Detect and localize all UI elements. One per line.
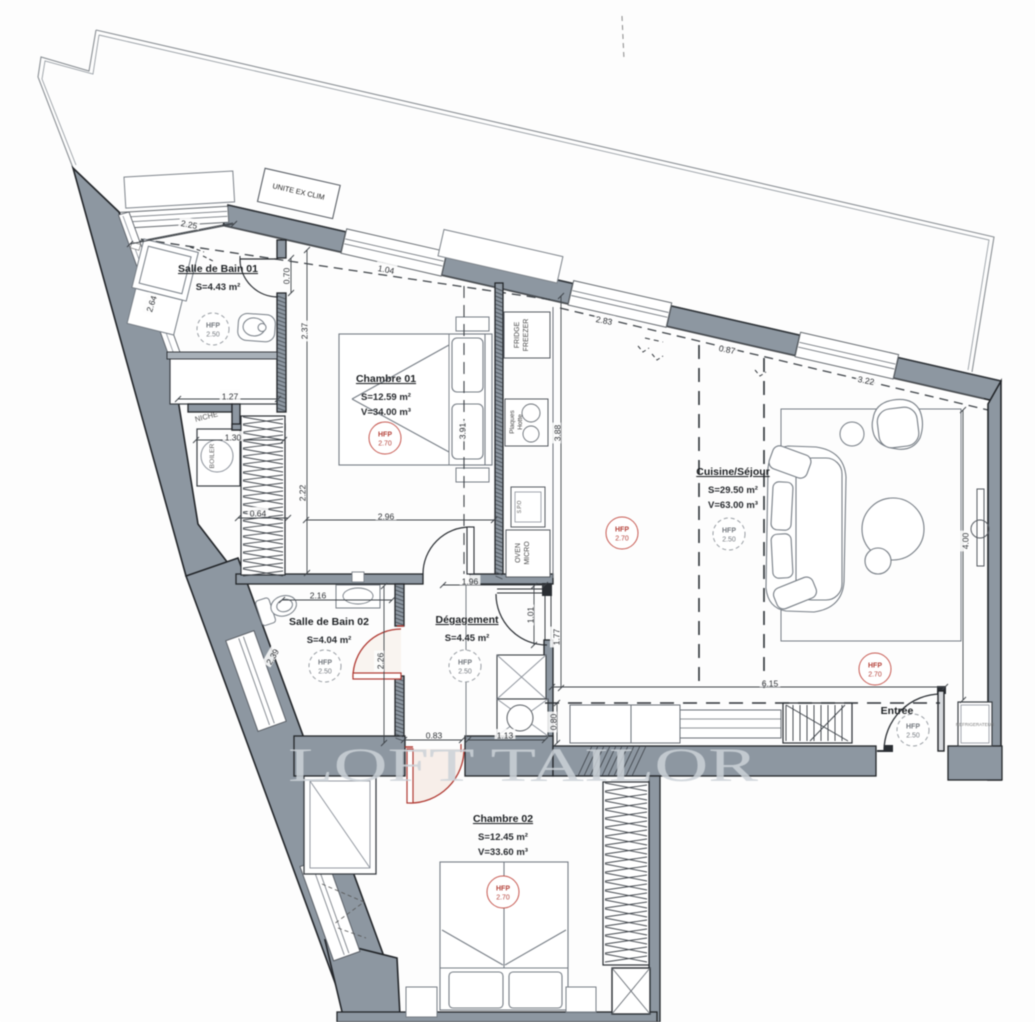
svg-text:4.00: 4.00 xyxy=(961,532,971,549)
svg-text:2.70: 2.70 xyxy=(378,441,392,448)
svg-text:HFP: HFP xyxy=(615,527,629,534)
svg-text:1.77: 1.77 xyxy=(552,628,562,645)
svg-text:HFP: HFP xyxy=(906,724,920,731)
svg-text:S=12.59 m²: S=12.59 m² xyxy=(361,392,411,403)
svg-text:0.64: 0.64 xyxy=(250,509,267,519)
svg-text:V=63.00 m³: V=63.00 m³ xyxy=(708,500,758,511)
svg-text:2.50: 2.50 xyxy=(458,669,472,676)
svg-text:HFP: HFP xyxy=(458,660,472,667)
svg-text:2.37: 2.37 xyxy=(300,322,310,339)
svg-text:FRIDGE: FRIDGE xyxy=(514,321,521,348)
svg-text:HFP: HFP xyxy=(496,886,510,893)
svg-text:Plaques: Plaques xyxy=(509,410,516,434)
svg-text:2.50: 2.50 xyxy=(906,733,920,740)
svg-text:0.70: 0.70 xyxy=(282,267,292,284)
svg-text:S=29.50 m²: S=29.50 m² xyxy=(708,485,758,496)
svg-text:3.91: 3.91 xyxy=(458,422,468,439)
svg-text:HFP: HFP xyxy=(318,660,332,667)
svg-text:2.50: 2.50 xyxy=(318,669,332,676)
svg-text:Dégagement: Dégagement xyxy=(435,614,499,626)
svg-text:1.27: 1.27 xyxy=(222,392,239,402)
svg-text:MICRO: MICRO xyxy=(524,541,531,565)
svg-text:BOILER: BOILER xyxy=(209,443,216,468)
svg-text:2.70: 2.70 xyxy=(496,895,510,902)
svg-text:FREEZER: FREEZER xyxy=(523,319,530,352)
svg-text:LOFT TAILOR: LOFT TAILOR xyxy=(288,739,758,792)
svg-text:Hotte: Hotte xyxy=(517,414,524,430)
svg-text:HFP: HFP xyxy=(378,432,392,439)
svg-text:HFP: HFP xyxy=(206,323,220,330)
svg-text:2.26: 2.26 xyxy=(376,652,386,669)
svg-text:0.80: 0.80 xyxy=(549,713,559,730)
svg-text:S=4.04 m²: S=4.04 m² xyxy=(307,635,352,646)
svg-text:2.96: 2.96 xyxy=(378,512,395,522)
svg-text:2.22: 2.22 xyxy=(298,484,308,501)
svg-text:OVEN: OVEN xyxy=(515,543,522,563)
svg-text:S=4.45 m²: S=4.45 m² xyxy=(445,633,490,644)
svg-text:1.01: 1.01 xyxy=(526,606,536,623)
svg-text:V=34.00 m³: V=34.00 m³ xyxy=(361,407,411,418)
svg-text:S.P.O: S.P.O xyxy=(517,501,523,514)
svg-text:2.16: 2.16 xyxy=(310,591,327,601)
svg-text:Salle de Bain 02: Salle de Bain 02 xyxy=(289,616,369,628)
svg-text:Chambre 02: Chambre 02 xyxy=(473,813,533,825)
svg-text:REFRIGERATEUR: REFRIGERATEUR xyxy=(956,722,995,727)
svg-text:2.70: 2.70 xyxy=(615,536,629,543)
svg-text:V=33.60 m³: V=33.60 m³ xyxy=(478,847,528,858)
svg-text:S=12.45 m²: S=12.45 m² xyxy=(478,832,528,843)
svg-text:S=4.43 m²: S=4.43 m² xyxy=(196,282,241,293)
svg-text:2.50: 2.50 xyxy=(722,537,736,544)
svg-text:Cuisine/Séjour: Cuisine/Séjour xyxy=(696,466,770,478)
svg-text:Salle de Bain 01: Salle de Bain 01 xyxy=(178,263,258,275)
svg-text:2.70: 2.70 xyxy=(868,672,882,679)
svg-text:HFP: HFP xyxy=(722,528,736,535)
svg-text:2.50: 2.50 xyxy=(206,332,220,339)
svg-text:1.30: 1.30 xyxy=(225,433,242,443)
svg-text:3.88: 3.88 xyxy=(553,424,563,441)
svg-text:1.96: 1.96 xyxy=(462,577,479,587)
svg-text:Chambre 01: Chambre 01 xyxy=(356,373,416,385)
svg-text:Entrée: Entrée xyxy=(881,705,914,717)
svg-text:6.15: 6.15 xyxy=(762,679,779,689)
svg-text:HFP: HFP xyxy=(868,663,882,670)
